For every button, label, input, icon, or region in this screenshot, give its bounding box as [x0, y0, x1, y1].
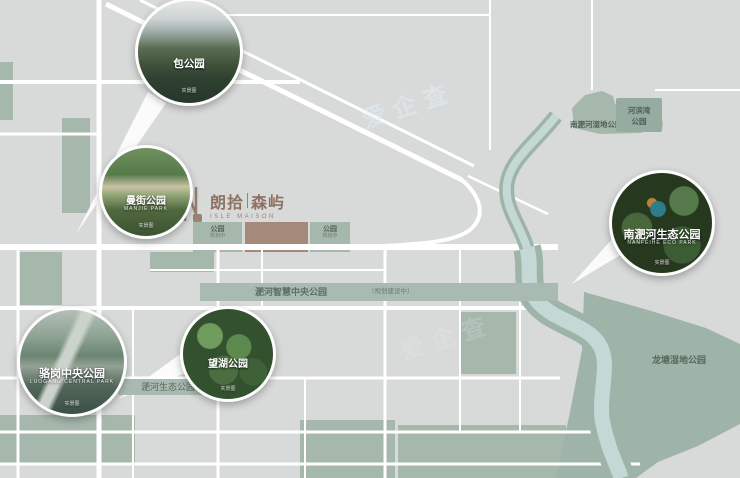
- smart-central-park-note: （规划建设中）: [368, 288, 414, 295]
- callout-manjie-park: 曼街公园 MANJIE PARK 实景图: [99, 145, 193, 239]
- planned-park-1-note: 规划中: [193, 234, 242, 240]
- location-map: 爱企查 爱企查 淝河智慧中央公园 （规划建设中） 淝河生态公园 龙塘湿地公园 南…: [0, 0, 740, 478]
- longtang-park-label: 龙塘湿地公园: [652, 355, 738, 365]
- callout-luogang-park: 骆岗中央公园 LUOGANG CENTRAL PARK 实景图: [17, 307, 127, 417]
- callout-nanfeihe-park: 南淝河生态公园 NANFEIHE ECO PARK 实景图: [609, 170, 715, 276]
- wanghu-park-note: 实景图: [183, 387, 273, 393]
- project-logo: 朗拾 森屿 ISLE MAISON: [181, 183, 285, 225]
- manjie-park-en: MANJIE PARK: [102, 207, 190, 213]
- bao-park-note: 实景图: [138, 89, 240, 95]
- planned-park-1: 公园 规划中: [193, 226, 242, 240]
- smart-central-park-label: 淝河智慧中央公园: [255, 287, 327, 297]
- callout-wanghu-park: 望湖公园 实景图: [180, 306, 276, 402]
- bao-park-caption: 包公园: [138, 59, 240, 71]
- nanfeihe-park-photo: [612, 173, 712, 273]
- bao-park-title: 包公园: [138, 59, 240, 71]
- logo-text: 朗拾 森屿 ISLE MAISON: [210, 189, 285, 220]
- logo-cn: 朗拾: [210, 189, 244, 213]
- nanfeihe-park-caption: 南淝河生态公园 NANFEIHE ECO PARK: [612, 229, 712, 247]
- corner-park-line1: 河滨湾: [616, 105, 662, 116]
- luogang-park-en: LUOGANG CENTRAL PARK: [20, 380, 124, 386]
- planned-park-2-note: 规划中: [310, 234, 350, 240]
- manjie-park-note: 实景图: [102, 224, 190, 230]
- logo-cn2: 森屿: [251, 189, 285, 213]
- nanfeihe-park-note: 实景图: [612, 261, 712, 267]
- logo-en: ISLE MAISON: [210, 214, 285, 220]
- smart-central-park-band: 淝河智慧中央公园 （规划建设中）: [200, 283, 558, 301]
- wanghu-park-title: 望湖公园: [183, 359, 273, 370]
- wanghu-park-caption: 望湖公园: [183, 359, 273, 370]
- manjie-park-caption: 曼街公园 MANJIE PARK: [102, 196, 190, 213]
- luogang-park-note: 实景图: [20, 402, 124, 408]
- luogang-park-photo: [20, 310, 124, 414]
- nanfeihe-park-en: NANFEIHE ECO PARK: [612, 241, 712, 247]
- corner-park-label: 河滨湾 公园: [616, 98, 662, 132]
- luogang-park-caption: 骆岗中央公园 LUOGANG CENTRAL PARK: [20, 368, 124, 386]
- planned-park-2: 公园 规划中: [310, 226, 350, 240]
- corner-park-line2: 公园: [616, 116, 662, 127]
- logo-divider: [247, 193, 248, 208]
- callout-bao-park: 包公园 实景图: [135, 0, 243, 106]
